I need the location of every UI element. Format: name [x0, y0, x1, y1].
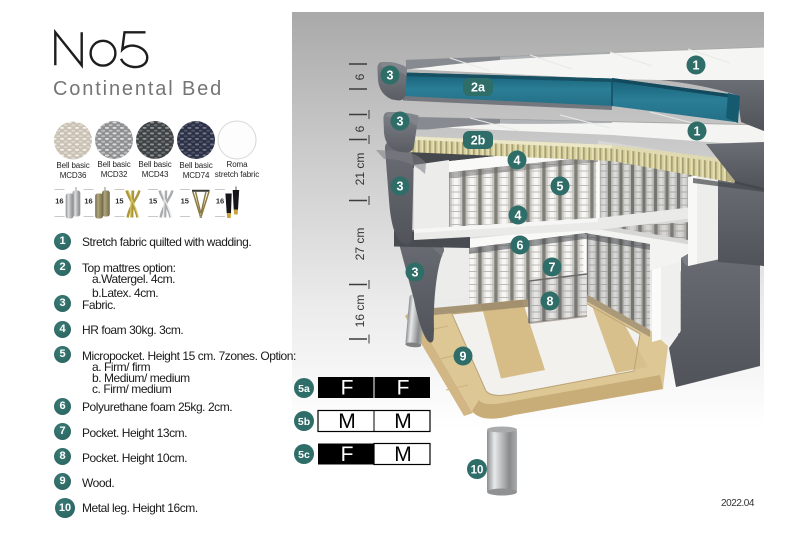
svg-text:2b: 2b: [471, 134, 486, 148]
svg-text:21 cm: 21 cm: [353, 153, 367, 186]
svg-text:6: 6: [353, 125, 367, 132]
svg-text:3: 3: [412, 266, 419, 280]
svg-text:4: 4: [515, 209, 522, 223]
svg-text:M: M: [338, 410, 356, 433]
svg-text:16 cm: 16 cm: [353, 295, 367, 328]
svg-text:3: 3: [397, 115, 404, 129]
svg-text:5a: 5a: [298, 383, 310, 395]
svg-text:16: 16: [84, 197, 92, 206]
svg-text:F: F: [397, 377, 410, 400]
svg-text:5b: 5b: [298, 416, 310, 428]
svg-text:M: M: [394, 410, 412, 433]
svg-text:3: 3: [397, 180, 404, 194]
svg-text:5: 5: [557, 180, 564, 194]
svg-text:F: F: [341, 377, 354, 400]
svg-text:15: 15: [181, 197, 189, 206]
svg-text:16: 16: [216, 197, 224, 206]
svg-text:8: 8: [547, 295, 554, 309]
svg-text:1: 1: [694, 125, 701, 139]
svg-text:F: F: [341, 443, 354, 466]
svg-text:M: M: [394, 443, 412, 466]
svg-text:16: 16: [55, 197, 63, 206]
svg-text:5c: 5c: [298, 449, 310, 461]
svg-text:9: 9: [460, 350, 467, 364]
svg-text:15: 15: [115, 197, 123, 206]
svg-text:10: 10: [471, 465, 484, 477]
svg-text:3: 3: [387, 69, 394, 83]
svg-text:6: 6: [517, 239, 524, 253]
svg-text:7: 7: [549, 261, 556, 275]
svg-text:2a: 2a: [471, 81, 486, 95]
svg-text:1: 1: [693, 59, 700, 73]
svg-text:15: 15: [149, 197, 157, 206]
svg-text:6: 6: [353, 73, 367, 80]
svg-text:27 cm: 27 cm: [353, 228, 367, 261]
svg-text:2022.04: 2022.04: [721, 498, 755, 509]
svg-text:4: 4: [514, 154, 521, 168]
